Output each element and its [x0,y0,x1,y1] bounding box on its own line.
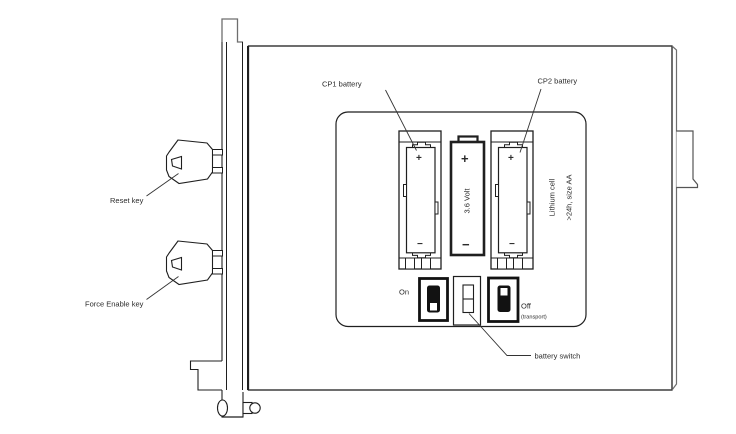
battery-holder-cp1: + − [399,131,441,269]
switch-off-sub-label: (transport) [521,315,547,321]
battery-switch-group [420,277,519,326]
module-depth-edge [672,46,677,390]
battery-switch-label: battery switch [535,352,581,361]
reset-key-label: Reset key [110,196,144,205]
force-enable-key-leader-line [147,277,179,300]
cp1-clip-left [404,185,407,197]
reset-key-leader-line [147,174,179,197]
force-enable-key-stub-bottom [213,269,223,275]
center-battery-plus-sign: + [461,151,469,166]
force-enable-key-stub-top [213,251,223,257]
battery-holder-cp2: + − [491,131,533,269]
center-battery: + − 3.6 Volt [451,137,484,256]
center-battery-minus-sign: − [462,237,470,252]
front-plate-top [222,19,243,42]
force-enable-key [167,241,223,285]
cp1-holder-foot-left [406,258,415,269]
cp2-battery-label: CP2 battery [538,77,578,86]
cp2-holder-foot-left [498,258,507,269]
cp2-holder-foot-right [514,258,523,269]
thumb-screw-head [250,403,260,413]
center-battery-voltage-label: 3.6 Volt [462,188,471,214]
reset-key [167,140,223,184]
cp1-minus-sign: − [417,239,423,250]
diagram-canvas: + − + − + − 3.6 Volt Lithium cell >24h, … [0,0,736,434]
cp2-clip-left [496,185,499,197]
reset-key-stub-bottom [213,168,223,174]
switch-off-toggle-notch [501,288,508,296]
cp2-plus-sign: + [508,153,514,164]
extractor-foot [191,361,223,390]
cp1-battery-label: CP1 battery [322,80,362,89]
module-right-tab [677,131,698,188]
cp2-clip-right [527,202,530,214]
reset-key-stub-top [213,150,223,156]
switch-off-label: Off [521,302,532,311]
battery-compartment-diagram: + − + − + − 3.6 Volt Lithium cell >24h, … [0,0,736,434]
cp2-minus-sign: − [509,239,515,250]
extractor-knob [218,400,228,416]
cell-spec-label: >24h, size AA [564,174,573,220]
switch-on-label: On [399,288,409,297]
cp1-holder-foot-right [422,258,431,269]
cp1-plus-sign: + [416,153,422,164]
switch-on-toggle-notch [430,303,437,311]
cell-type-label: Lithium cell [547,178,556,216]
cp1-clip-right [435,202,438,214]
force-enable-key-label: Force Enable key [85,300,144,309]
